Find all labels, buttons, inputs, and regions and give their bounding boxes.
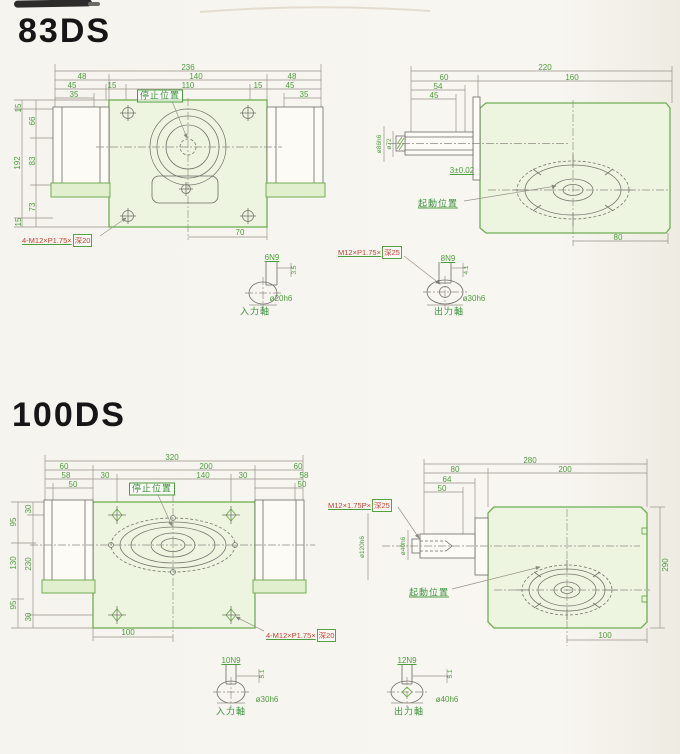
stop-position-label-100: 停止位置	[129, 483, 175, 496]
dim-35-left: 35	[70, 91, 79, 99]
dim-230-vert: 230	[25, 557, 33, 570]
dim-236: 236	[181, 64, 194, 72]
ds100-side-view	[368, 459, 665, 646]
dim-160: 160	[565, 74, 578, 82]
dia-shaft-100: ø40h6	[401, 537, 408, 555]
tap-thread-text-83: M12×P1.75×	[338, 248, 381, 257]
model-title-100ds: 100DS	[12, 396, 126, 435]
bolt-thread-label-100: 4-M12×P1.75× 深20	[266, 629, 336, 642]
dim-320: 320	[165, 454, 178, 462]
dim-64: 64	[443, 476, 452, 484]
dim-220: 220	[538, 64, 551, 72]
dim-50-right: 50	[298, 481, 307, 489]
dim-30-right: 30	[239, 472, 248, 480]
ds83-tap-leader	[404, 256, 440, 284]
dim-15-bottom-vert: 15	[15, 218, 23, 227]
dia-boss-83: ø86h6	[377, 135, 384, 153]
dia-input-83: ø20h6	[270, 295, 293, 303]
key-depth-output-83: 4.1	[464, 265, 471, 274]
dia-output-83: ø30h6	[463, 295, 486, 303]
ds83-output-shaft-detail	[404, 256, 467, 309]
stop-position-label-83: 停止位置	[137, 90, 183, 103]
keyway-6N9: 6N9	[265, 254, 280, 262]
tap-thread-depth-83: 深25	[382, 246, 402, 259]
dia-shaft-83: ø72	[387, 138, 394, 149]
dim-30-top-vert: 30	[25, 505, 33, 514]
key-depth-input-83: 3.5	[292, 265, 299, 274]
output-shaft-name-100: 出力軸	[394, 708, 424, 717]
ds100-tap-leader	[398, 507, 419, 538]
dim-15-left: 15	[108, 82, 117, 90]
bolt-thread-text-83: 4-M12×P1.75×	[22, 236, 72, 245]
dim-58-left: 58	[62, 472, 71, 480]
input-shaft-name-100: 入力軸	[216, 708, 246, 717]
bolt-thread-depth-100: 深20	[317, 629, 337, 642]
dim-200-side: 200	[558, 466, 571, 474]
drawing-linework	[0, 0, 680, 754]
ds100-side-housing	[488, 507, 647, 628]
dia-output-100: ø40h6	[436, 696, 459, 704]
dim-15-top-vert: 15	[15, 104, 23, 113]
start-position-label-100: 起動位置	[409, 589, 449, 598]
dim-70: 70	[236, 229, 245, 237]
dim-73-vert: 73	[29, 203, 37, 212]
tap-thread-label-100: M12×1.75P× 深25	[328, 499, 392, 512]
dim-58-right: 58	[300, 472, 309, 480]
dim-60-right: 60	[294, 463, 303, 471]
tap-thread-depth-100: 深25	[372, 499, 392, 512]
key-depth-input-100: 5.1	[260, 669, 267, 678]
dia-boss-100: ø120h6	[360, 536, 367, 558]
dim-45-left: 45	[68, 82, 77, 90]
ds83-side-view	[384, 66, 672, 246]
dim-100-side: 100	[598, 632, 611, 640]
dim-30-bottom-vert: 30	[25, 613, 33, 622]
dia-input-100: ø30h6	[256, 696, 279, 704]
ds100-input-shaft-detail	[213, 665, 262, 708]
bolt-thread-depth-83: 深20	[73, 234, 93, 247]
dim-54: 54	[434, 83, 443, 91]
dim-35-right: 35	[300, 91, 309, 99]
dim-15-right: 15	[254, 82, 263, 90]
dim-290-vert: 290	[662, 558, 670, 571]
dim-66-vert: 66	[29, 117, 37, 126]
dim-60: 60	[440, 74, 449, 82]
start-position-label-83: 起動位置	[418, 200, 458, 209]
dim-140: 140	[189, 73, 202, 81]
keyway-10N9: 10N9	[221, 657, 240, 665]
dim-140-100: 140	[196, 472, 209, 480]
dim-200-front: 200	[199, 463, 212, 471]
dim-80-side: 80	[451, 466, 460, 474]
bolt-thread-text-100: 4-M12×P1.75×	[266, 631, 316, 640]
keyway-8N9: 8N9	[441, 255, 456, 263]
dim-60-left: 60	[60, 463, 69, 471]
dim-95-top-vert: 95	[10, 518, 18, 527]
dim-83-vert: 83	[29, 157, 37, 166]
dim-45-right: 45	[286, 82, 295, 90]
ds100-side-flange	[475, 518, 488, 575]
dim-80: 80	[614, 234, 623, 242]
tap-thread-text-100: M12×1.75P×	[328, 501, 371, 510]
dim-48-right: 48	[288, 73, 297, 81]
ds83-side-housing	[480, 103, 670, 233]
dim-50-left: 50	[69, 481, 78, 489]
dim-130-vert: 130	[10, 556, 18, 569]
bolt-thread-label-83: 4-M12×P1.75× 深20	[22, 234, 92, 247]
tolerance-3-002: 3±0.02	[450, 167, 474, 175]
output-shaft-name-83: 出力軸	[434, 308, 464, 317]
drawing-sheet: 83DS 100DS 236 140 48 48 110 45 15 15 45…	[0, 0, 680, 754]
scan-streak	[200, 7, 430, 12]
keyway-12N9: 12N9	[397, 657, 416, 665]
dim-48-left: 48	[78, 73, 87, 81]
dim-95-bottom-vert: 95	[10, 601, 18, 610]
dim-110: 110	[182, 82, 195, 90]
model-title-83ds: 83DS	[18, 12, 111, 51]
dim-192-vert: 192	[14, 156, 22, 169]
input-shaft-name-83: 入力軸	[240, 308, 270, 317]
key-depth-output-100: 5.1	[448, 669, 455, 678]
dim-30-left: 30	[101, 472, 110, 480]
dim-50-side: 50	[438, 485, 447, 493]
dim-100-front: 100	[121, 629, 134, 637]
dim-45-side: 45	[430, 92, 439, 100]
dim-280: 280	[523, 457, 536, 465]
tap-thread-label-83: M12×P1.75× 深25	[338, 246, 402, 259]
